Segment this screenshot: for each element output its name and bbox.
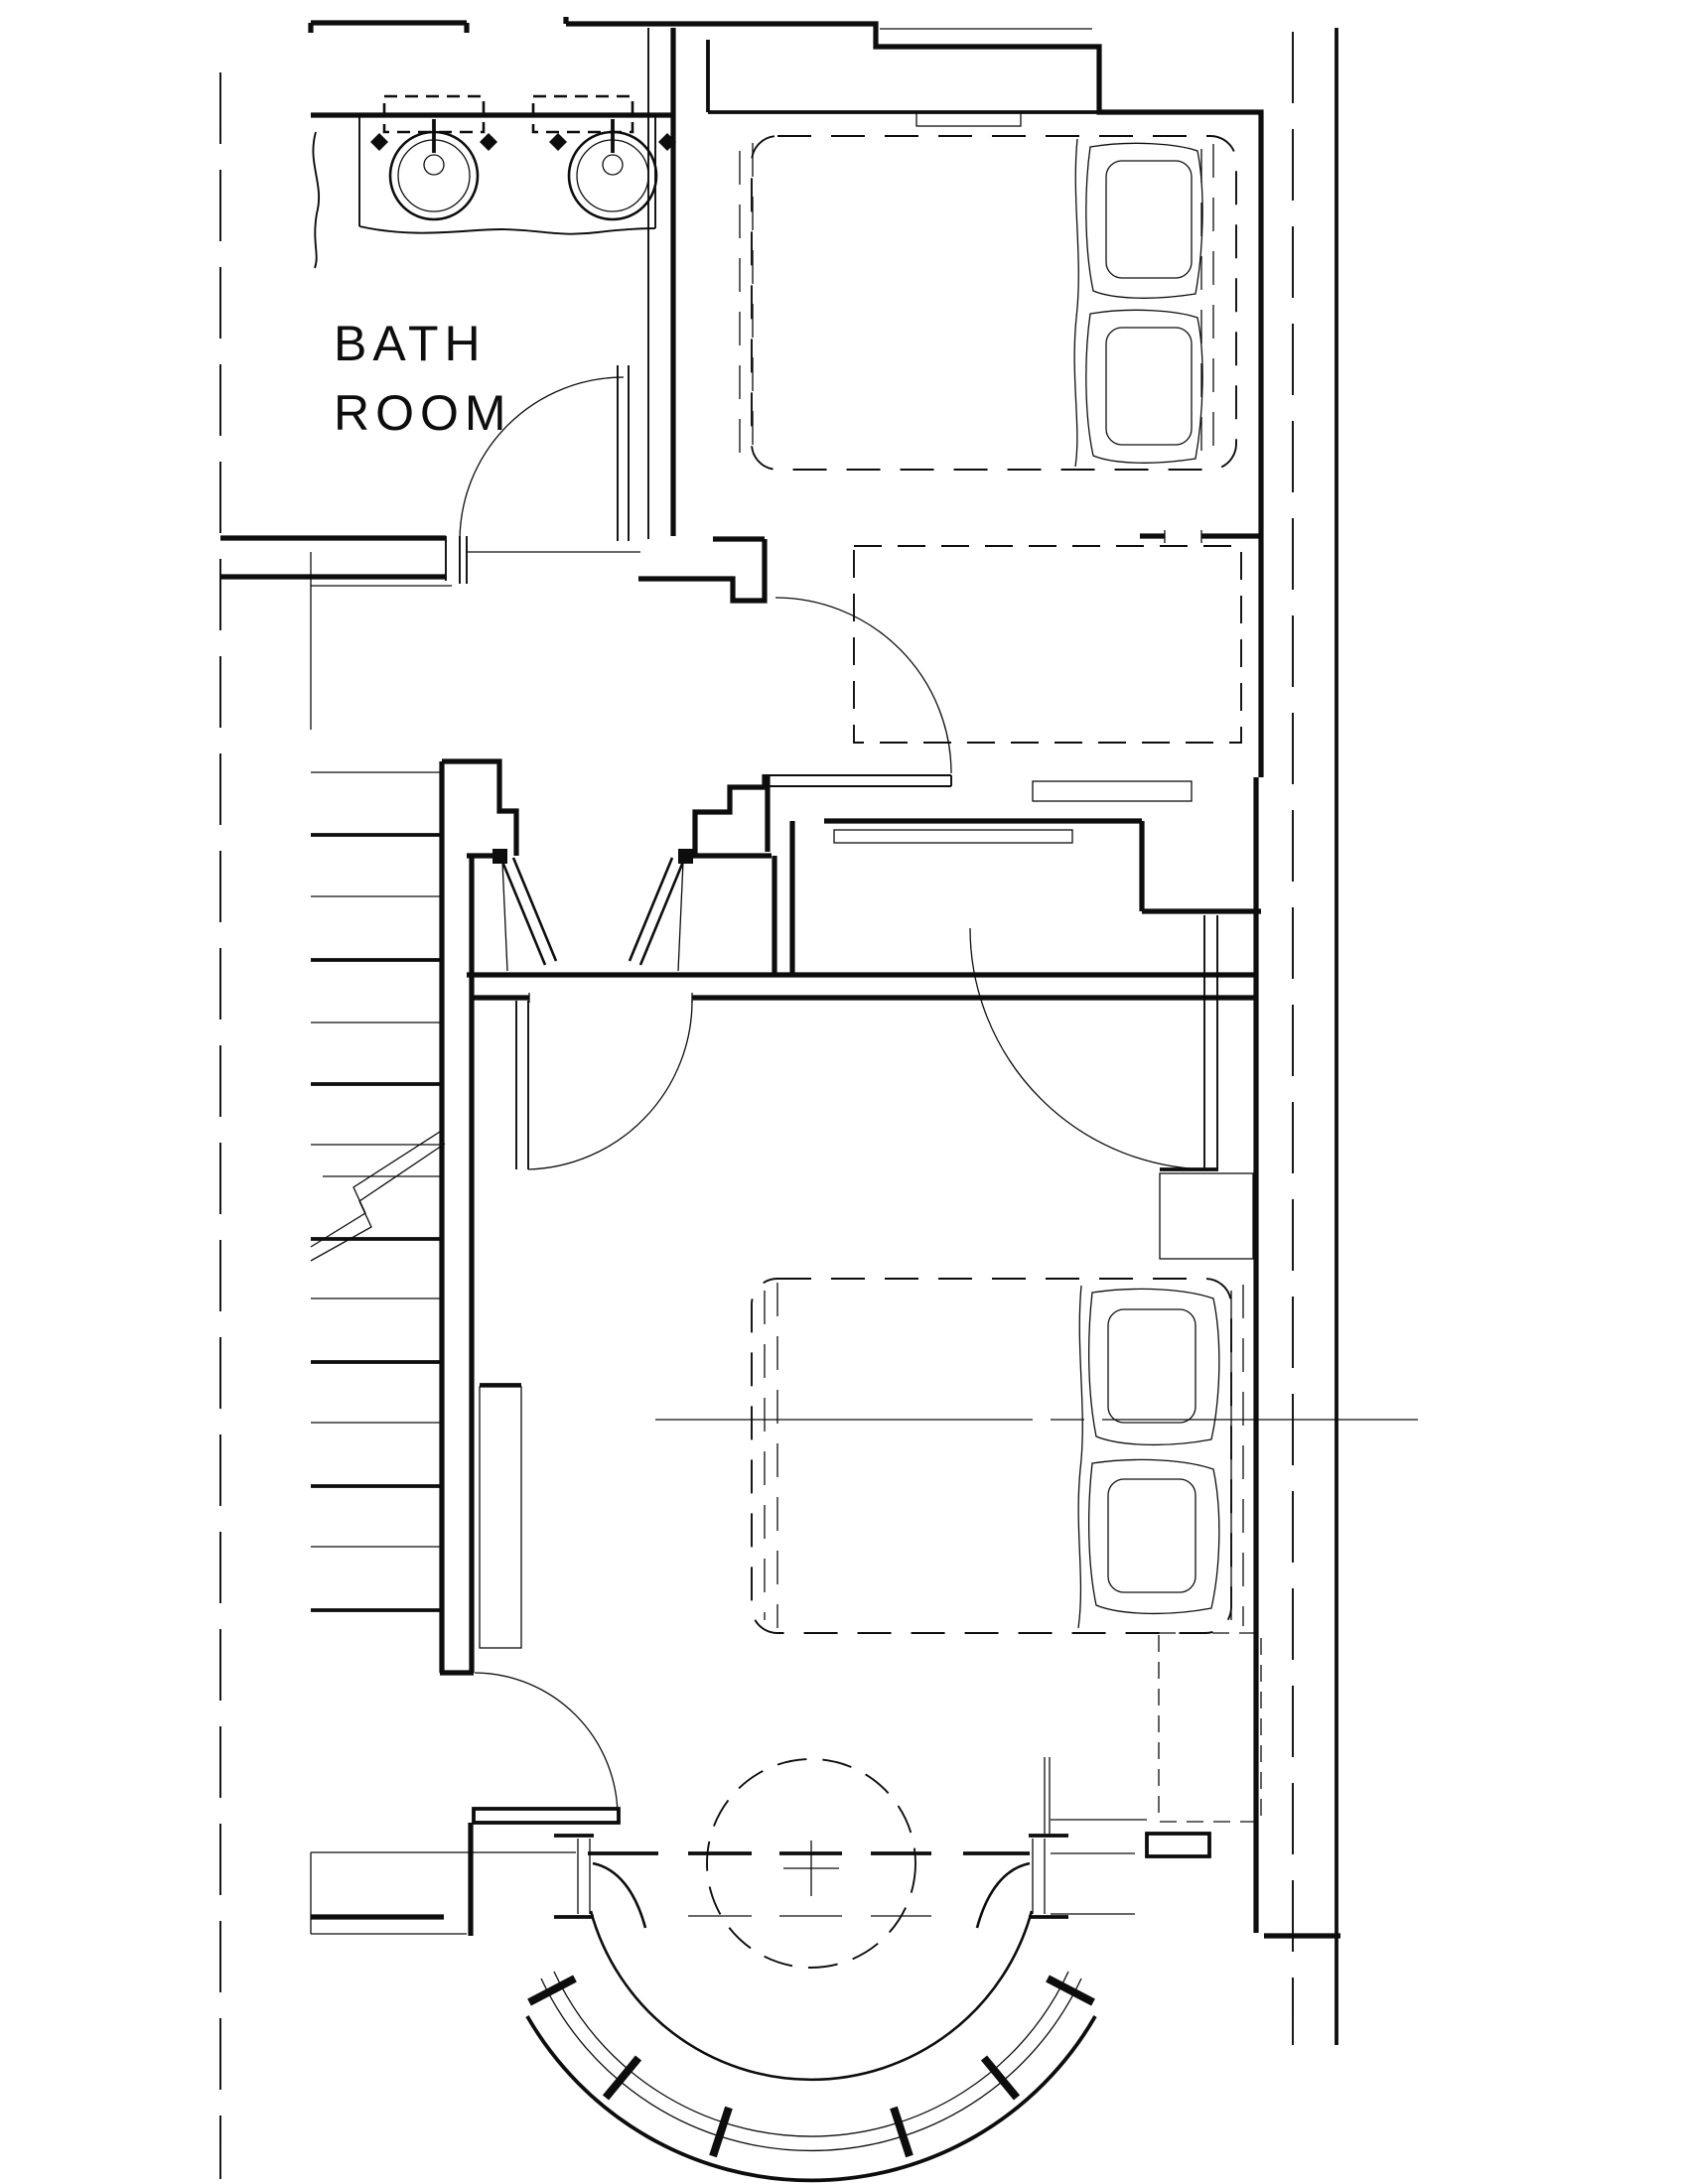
floor-plan-canvas: BATH ROOM xyxy=(0,0,1688,2184)
paper-background xyxy=(0,0,1688,2184)
bathroom-label-line1: BATH xyxy=(334,316,487,371)
bathroom-label-line2: ROOM xyxy=(334,385,512,441)
wardrobe-hinge-right-icon xyxy=(678,849,693,864)
floor-plan-sheet: BATH ROOM xyxy=(0,0,1688,2184)
wardrobe-hinge-left-icon xyxy=(492,849,507,864)
